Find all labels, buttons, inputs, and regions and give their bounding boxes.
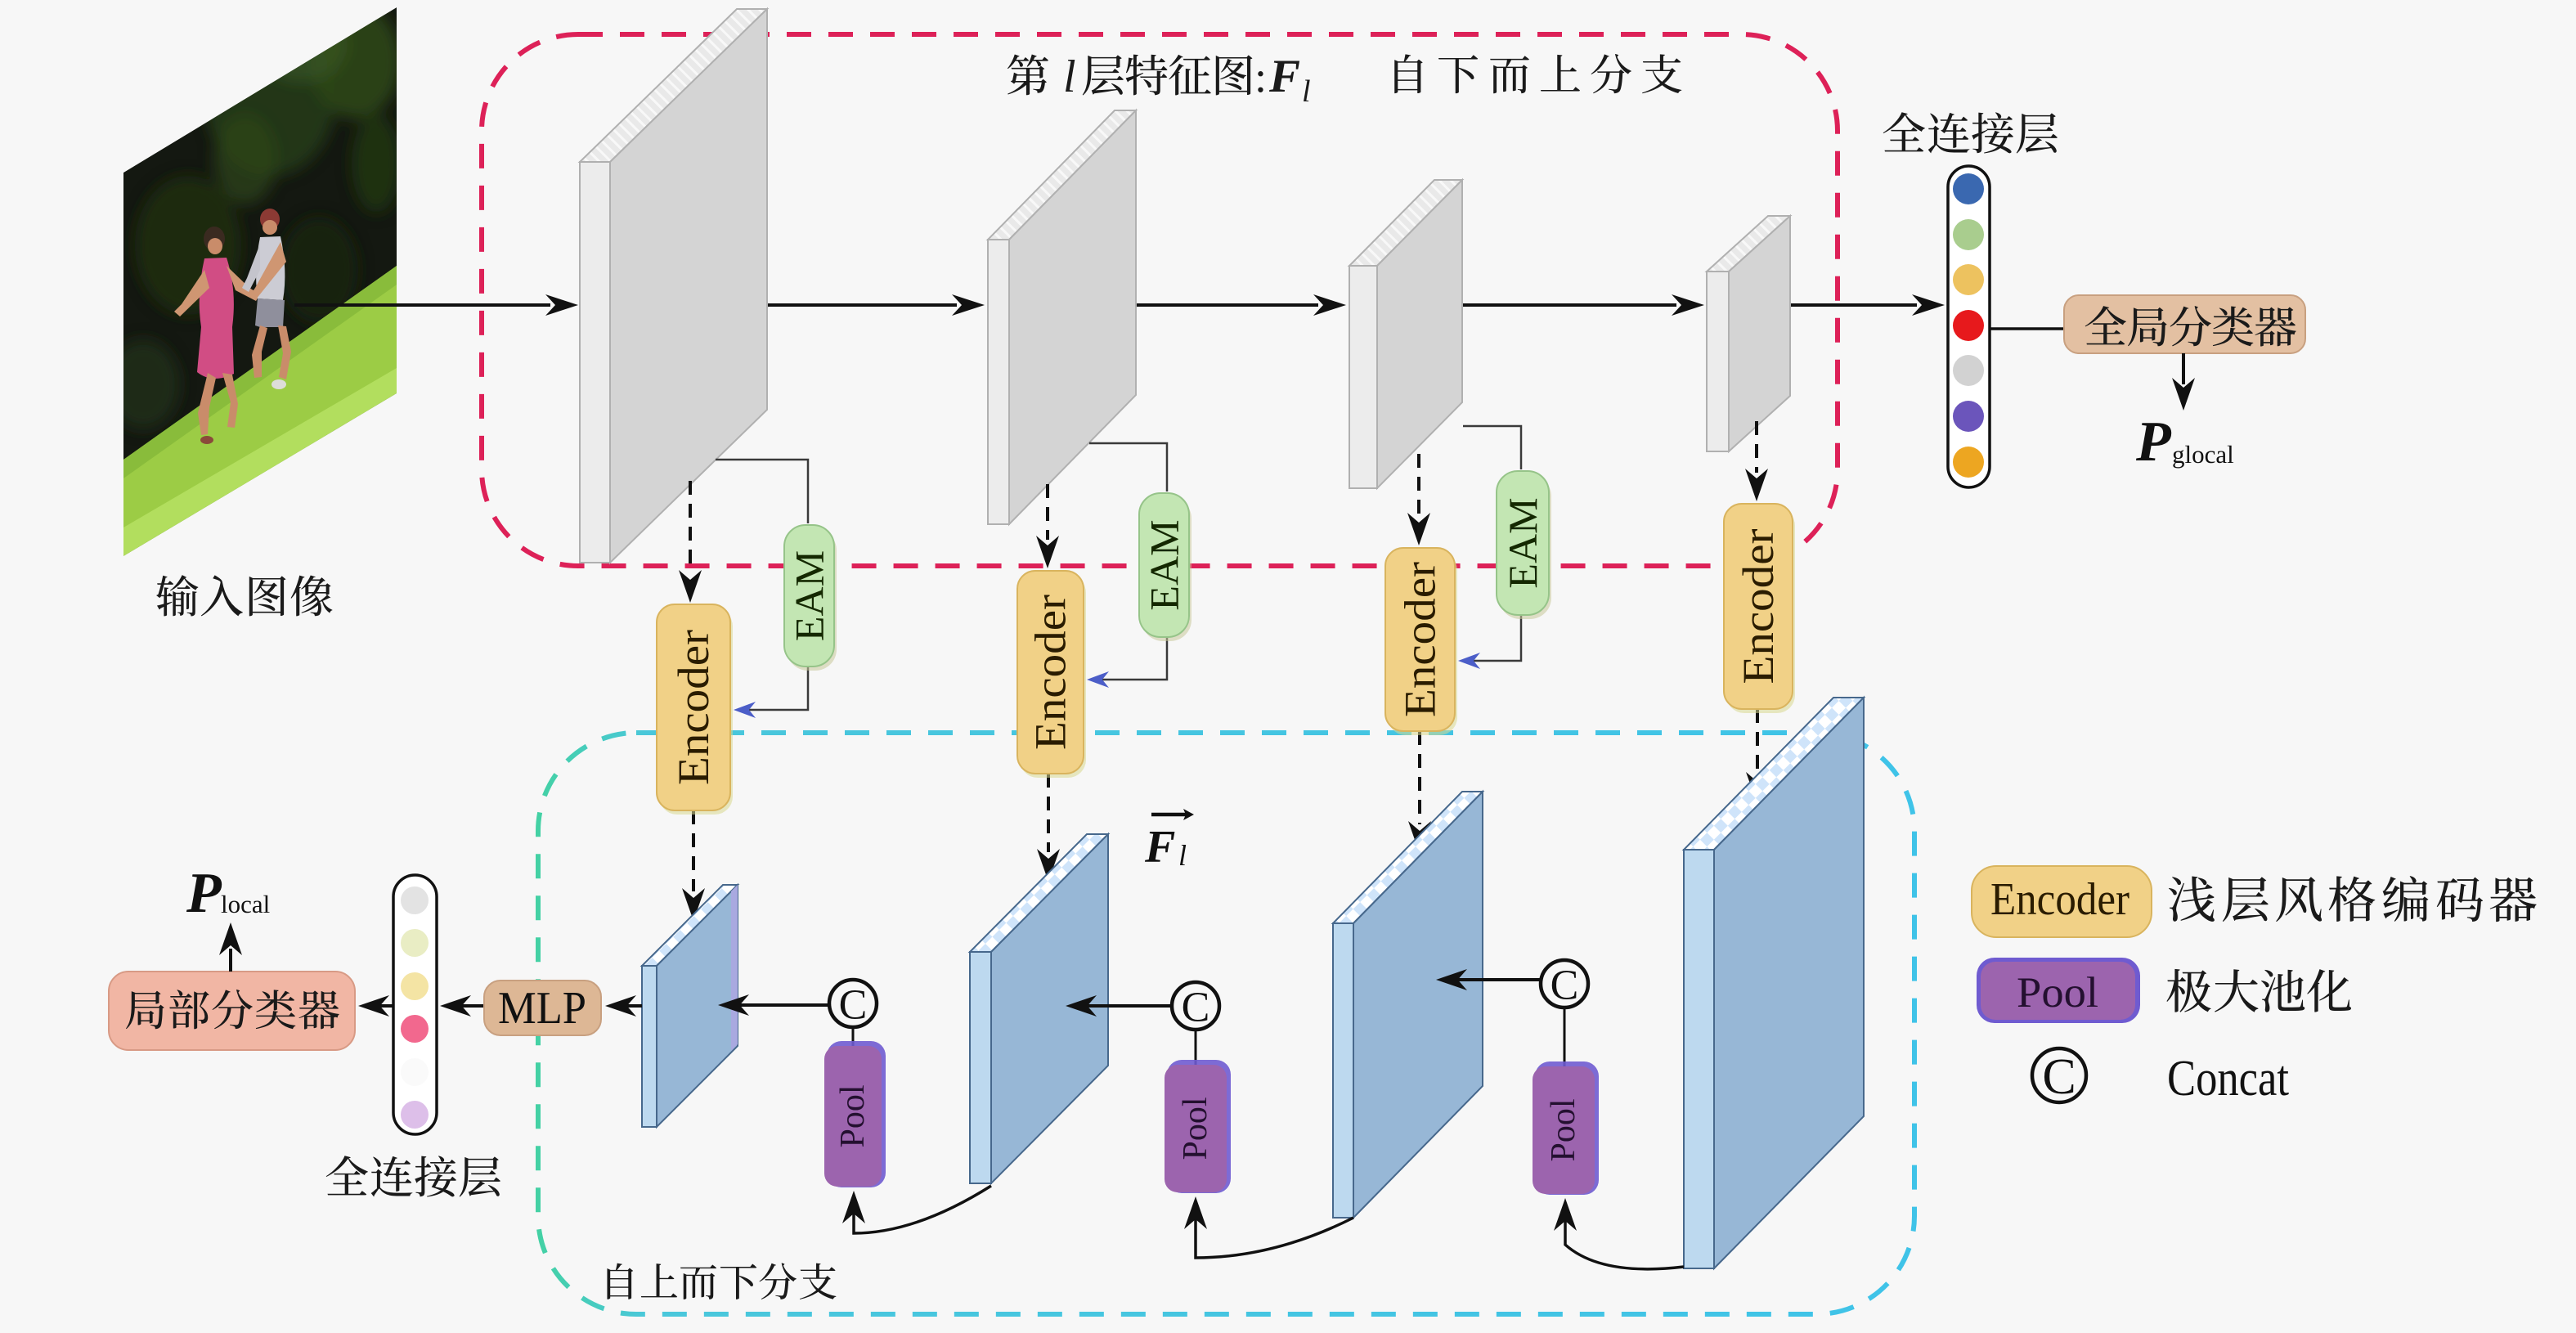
svg-text:l: l [1302, 74, 1311, 109]
svg-text:Pool: Pool [1545, 1098, 1582, 1161]
svg-text:C: C [839, 982, 868, 1029]
svg-text:glocal: glocal [2172, 440, 2234, 469]
svg-text:local: local [221, 890, 270, 918]
svg-text:Concat: Concat [2167, 1051, 2289, 1106]
svg-text:P: P [2135, 411, 2172, 474]
svg-text::: : [1254, 52, 1267, 101]
svg-text:C: C [2042, 1049, 2076, 1105]
svg-text:F: F [1268, 51, 1300, 102]
svg-text:F: F [1144, 822, 1175, 873]
svg-text:Pool: Pool [834, 1084, 872, 1147]
svg-text:l: l [1063, 52, 1076, 102]
svg-text:Encoder: Encoder [1990, 874, 2129, 925]
svg-text:MLP: MLP [498, 983, 586, 1034]
svg-text:EAM: EAM [787, 550, 832, 641]
svg-text:Encoder: Encoder [1734, 528, 1783, 684]
svg-text:EAM: EAM [1500, 497, 1546, 588]
svg-text:Encoder: Encoder [1396, 562, 1445, 717]
svg-text:C: C [1182, 985, 1210, 1031]
svg-text:Encoder: Encoder [669, 630, 718, 785]
svg-text:Encoder: Encoder [1026, 595, 1075, 750]
svg-text:P: P [186, 862, 222, 925]
svg-text:Pool: Pool [2017, 969, 2098, 1017]
svg-text:l: l [1178, 839, 1187, 872]
svg-text:C: C [1551, 963, 1579, 1009]
svg-text:Pool: Pool [1177, 1097, 1214, 1160]
svg-text:EAM: EAM [1142, 519, 1187, 610]
